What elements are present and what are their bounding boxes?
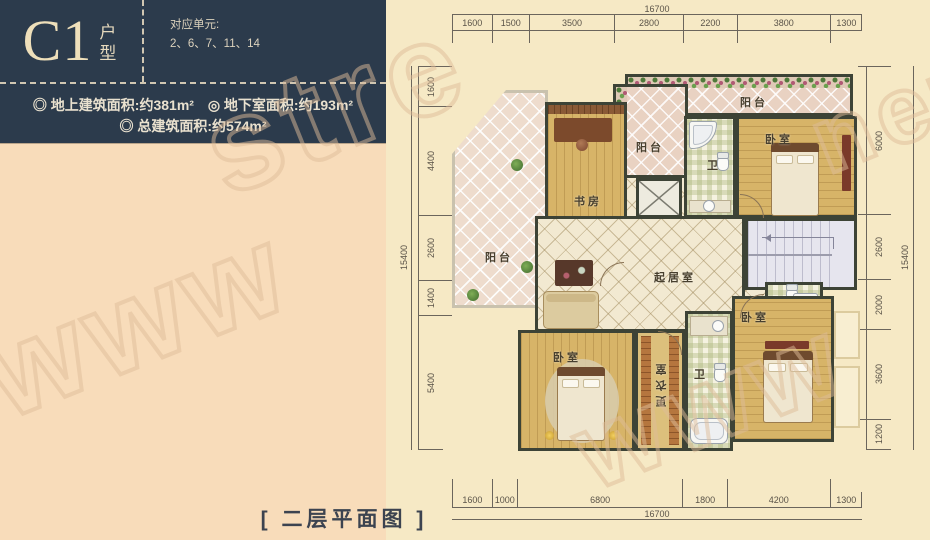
bathtub-icon <box>690 418 728 444</box>
room-label-bath: 卫 <box>694 366 706 382</box>
dim-segment: 6000 <box>867 66 891 214</box>
bed-icon <box>763 351 813 423</box>
room-label-balcony: 阳台 <box>740 94 768 110</box>
dim-segment-value: 3500 <box>562 19 582 30</box>
dimension-right-segments: 60002600200036001200 <box>866 66 891 450</box>
dim-segment: 1600 <box>452 492 492 507</box>
dim-segment: 1300 <box>830 15 862 30</box>
dimension-bottom: 160010006800180042001300 16700 <box>452 492 862 520</box>
dim-segment-value: 2600 <box>875 237 884 257</box>
stair-divider <box>748 254 832 256</box>
lamp-icon <box>545 431 554 440</box>
room-bath-master: 卫 <box>685 311 733 451</box>
wardrobe-icon <box>842 135 851 191</box>
room-roof-terrace: 阳台 <box>452 90 548 308</box>
dimension-top-total: 16700 <box>452 3 862 15</box>
floor-plan: 阳台 阳台 阳台 书房 卫 卧室 <box>452 66 862 452</box>
units-label: 对应单元: <box>170 16 260 35</box>
dim-segment-value: 1600 <box>462 496 482 507</box>
dim-segment: 1800 <box>682 492 727 507</box>
dim-segment: 3500 <box>529 15 614 30</box>
dim-segment: 4200 <box>727 492 830 507</box>
dim-segment: 2600 <box>867 214 891 279</box>
room-label-bedroom: 卧室 <box>765 131 793 147</box>
area-stats: ◎ 地上建筑面积:约381m² ◎ 地下室面积:约193m² ◎ 总建筑面积:约… <box>0 84 386 137</box>
dim-segment: 1200 <box>867 419 891 449</box>
dim-segment-value: 1500 <box>501 19 521 30</box>
sofa-icon <box>543 291 599 329</box>
units-list: 2、6、7、11、14 <box>170 35 260 54</box>
dim-segment: 2200 <box>683 15 737 30</box>
dimension-left-total: 15400 <box>398 66 412 450</box>
dimension-top: 16700 1600150035002800220038001300 <box>452 3 862 31</box>
bed-icon <box>557 367 605 441</box>
dim-segment: 3600 <box>867 329 891 418</box>
dim-segment-value: 6000 <box>875 131 884 151</box>
stair-landing <box>830 221 854 287</box>
dim-segment: 1400 <box>419 280 443 315</box>
unit-mapping: 对应单元: 2、6、7、11、14 <box>144 0 260 82</box>
dimension-bottom-total: 16700 <box>452 508 862 520</box>
unit-type-label: 户型 <box>99 22 119 65</box>
room-label-living: 起居室 <box>654 269 696 285</box>
dim-segment: 1000 <box>492 492 517 507</box>
dim-segment-value: 1300 <box>836 496 856 507</box>
dim-segment-value: 1300 <box>836 19 856 30</box>
unit-code: C1 <box>23 13 93 68</box>
dim-segment-value: 3800 <box>774 19 794 30</box>
wardrobe-icon <box>641 336 651 445</box>
dim-segment: 1600 <box>452 15 492 30</box>
dim-total-value: 15400 <box>901 245 910 270</box>
dimension-left: 15400 16004400260014005400 <box>398 66 443 450</box>
room-bath-top: 卫 <box>684 116 736 218</box>
staircase <box>745 218 857 290</box>
room-label-bedroom: 卧室 <box>553 349 581 365</box>
dim-segment-value: 2600 <box>427 238 436 258</box>
flyer-page: C1 户型 对应单元: 2、6、7、11、14 ◎ 地上建筑面积:约381m² … <box>0 0 930 540</box>
right-ledge-upper <box>834 311 860 359</box>
dim-segment: 1600 <box>419 66 443 106</box>
dimension-right-total: 15400 <box>898 66 914 450</box>
dim-segment: 2600 <box>419 215 443 280</box>
sink-icon <box>712 320 724 332</box>
dimension-left-segments: 16004400260014005400 <box>418 66 443 450</box>
dimension-bottom-segments: 160010006800180042001300 <box>452 492 862 508</box>
plant-icon <box>511 159 523 171</box>
dimension-right: 60002600200036001200 15400 <box>866 66 914 450</box>
info-panel-top: C1 户型 对应单元: 2、6、7、11、14 <box>0 0 386 84</box>
room-label-balcony: 阳台 <box>636 139 664 155</box>
room-label-dressing: 更衣室 <box>654 359 670 407</box>
dim-segment: 2800 <box>614 15 683 30</box>
area-total: ◎ 总建筑面积:约574m² <box>119 118 266 134</box>
dim-segment-value: 1200 <box>875 424 884 444</box>
dim-segment-value: 1800 <box>695 496 715 507</box>
dim-segment-value: 5400 <box>427 373 436 393</box>
coffee-table-icon <box>555 260 593 286</box>
dim-segment-value: 2800 <box>639 19 659 30</box>
area-basement: ◎ 地下室面积:约193m² <box>208 97 353 113</box>
bed-icon <box>771 143 819 216</box>
unit-info-panel: C1 户型 对应单元: 2、6、7、11、14 ◎ 地上建筑面积:约381m² … <box>0 0 386 143</box>
dim-segment-value: 4200 <box>769 496 789 507</box>
dim-total-value: 15400 <box>400 245 409 270</box>
dim-segment: 5400 <box>419 315 443 449</box>
dim-segment-value: 1000 <box>495 496 515 507</box>
area-above-ground: ◎ 地上建筑面积:约381m² <box>33 97 194 113</box>
plant-icon <box>467 289 479 301</box>
dim-segment-value: 3600 <box>875 364 884 384</box>
dim-segment-value: 2000 <box>875 295 884 315</box>
lamp-icon <box>609 431 618 440</box>
dim-segment-value: 1600 <box>427 77 436 97</box>
dim-total-value: 16700 <box>644 5 669 14</box>
bathtub-icon <box>689 121 717 149</box>
person-icon <box>576 139 588 151</box>
dim-segment-value: 1600 <box>462 19 482 30</box>
room-label-study: 书房 <box>574 193 602 209</box>
room-label-balcony: 阳台 <box>485 249 513 265</box>
dim-total-value: 16700 <box>644 510 669 519</box>
dim-segment: 6800 <box>517 492 683 507</box>
unit-title: C1 户型 <box>0 0 144 82</box>
elevator-x-icon <box>639 181 679 215</box>
caption: [ 二层平面图 ] <box>244 503 444 533</box>
dimension-top-segments: 1600150035002800220038001300 <box>452 15 862 31</box>
toilet-icon <box>714 366 726 382</box>
plant-icon <box>521 261 533 273</box>
dim-segment-value: 6800 <box>590 496 610 507</box>
room-label-bath: 卫 <box>707 157 719 173</box>
dim-segment: 1300 <box>830 492 862 507</box>
dim-segment-value: 4400 <box>427 151 436 171</box>
stair-direction-arrow <box>762 237 834 238</box>
dresser-icon <box>765 341 809 349</box>
dim-segment: 2000 <box>867 279 891 329</box>
dim-segment-value: 2200 <box>700 19 720 30</box>
dim-segment: 4400 <box>419 106 443 215</box>
dim-segment: 1500 <box>492 15 529 30</box>
room-master-bedroom: 卧室 <box>518 330 635 451</box>
sink-icon <box>703 200 715 212</box>
dim-segment: 3800 <box>737 15 830 30</box>
elevator-shaft <box>636 178 682 218</box>
dim-segment-value: 1400 <box>427 288 436 308</box>
right-ledge-lower <box>834 366 860 428</box>
bookshelf-icon <box>548 105 624 114</box>
